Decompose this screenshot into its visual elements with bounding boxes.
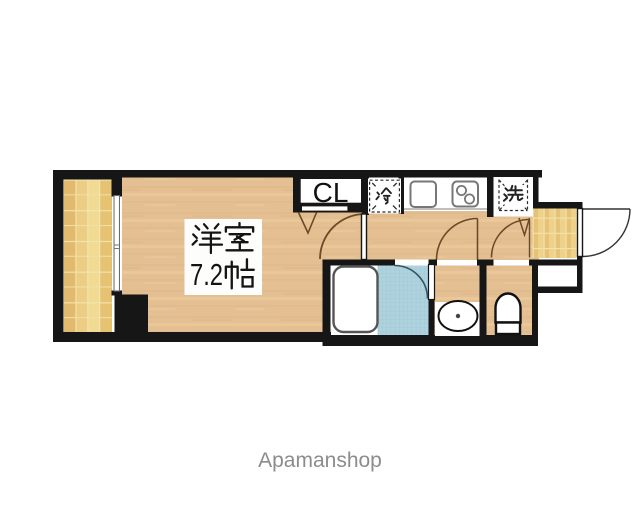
svg-text:Apamanshop: Apamanshop [258, 449, 382, 472]
svg-text:7.2: 7.2 [190, 257, 223, 292]
svg-text:CL: CL [313, 177, 349, 208]
